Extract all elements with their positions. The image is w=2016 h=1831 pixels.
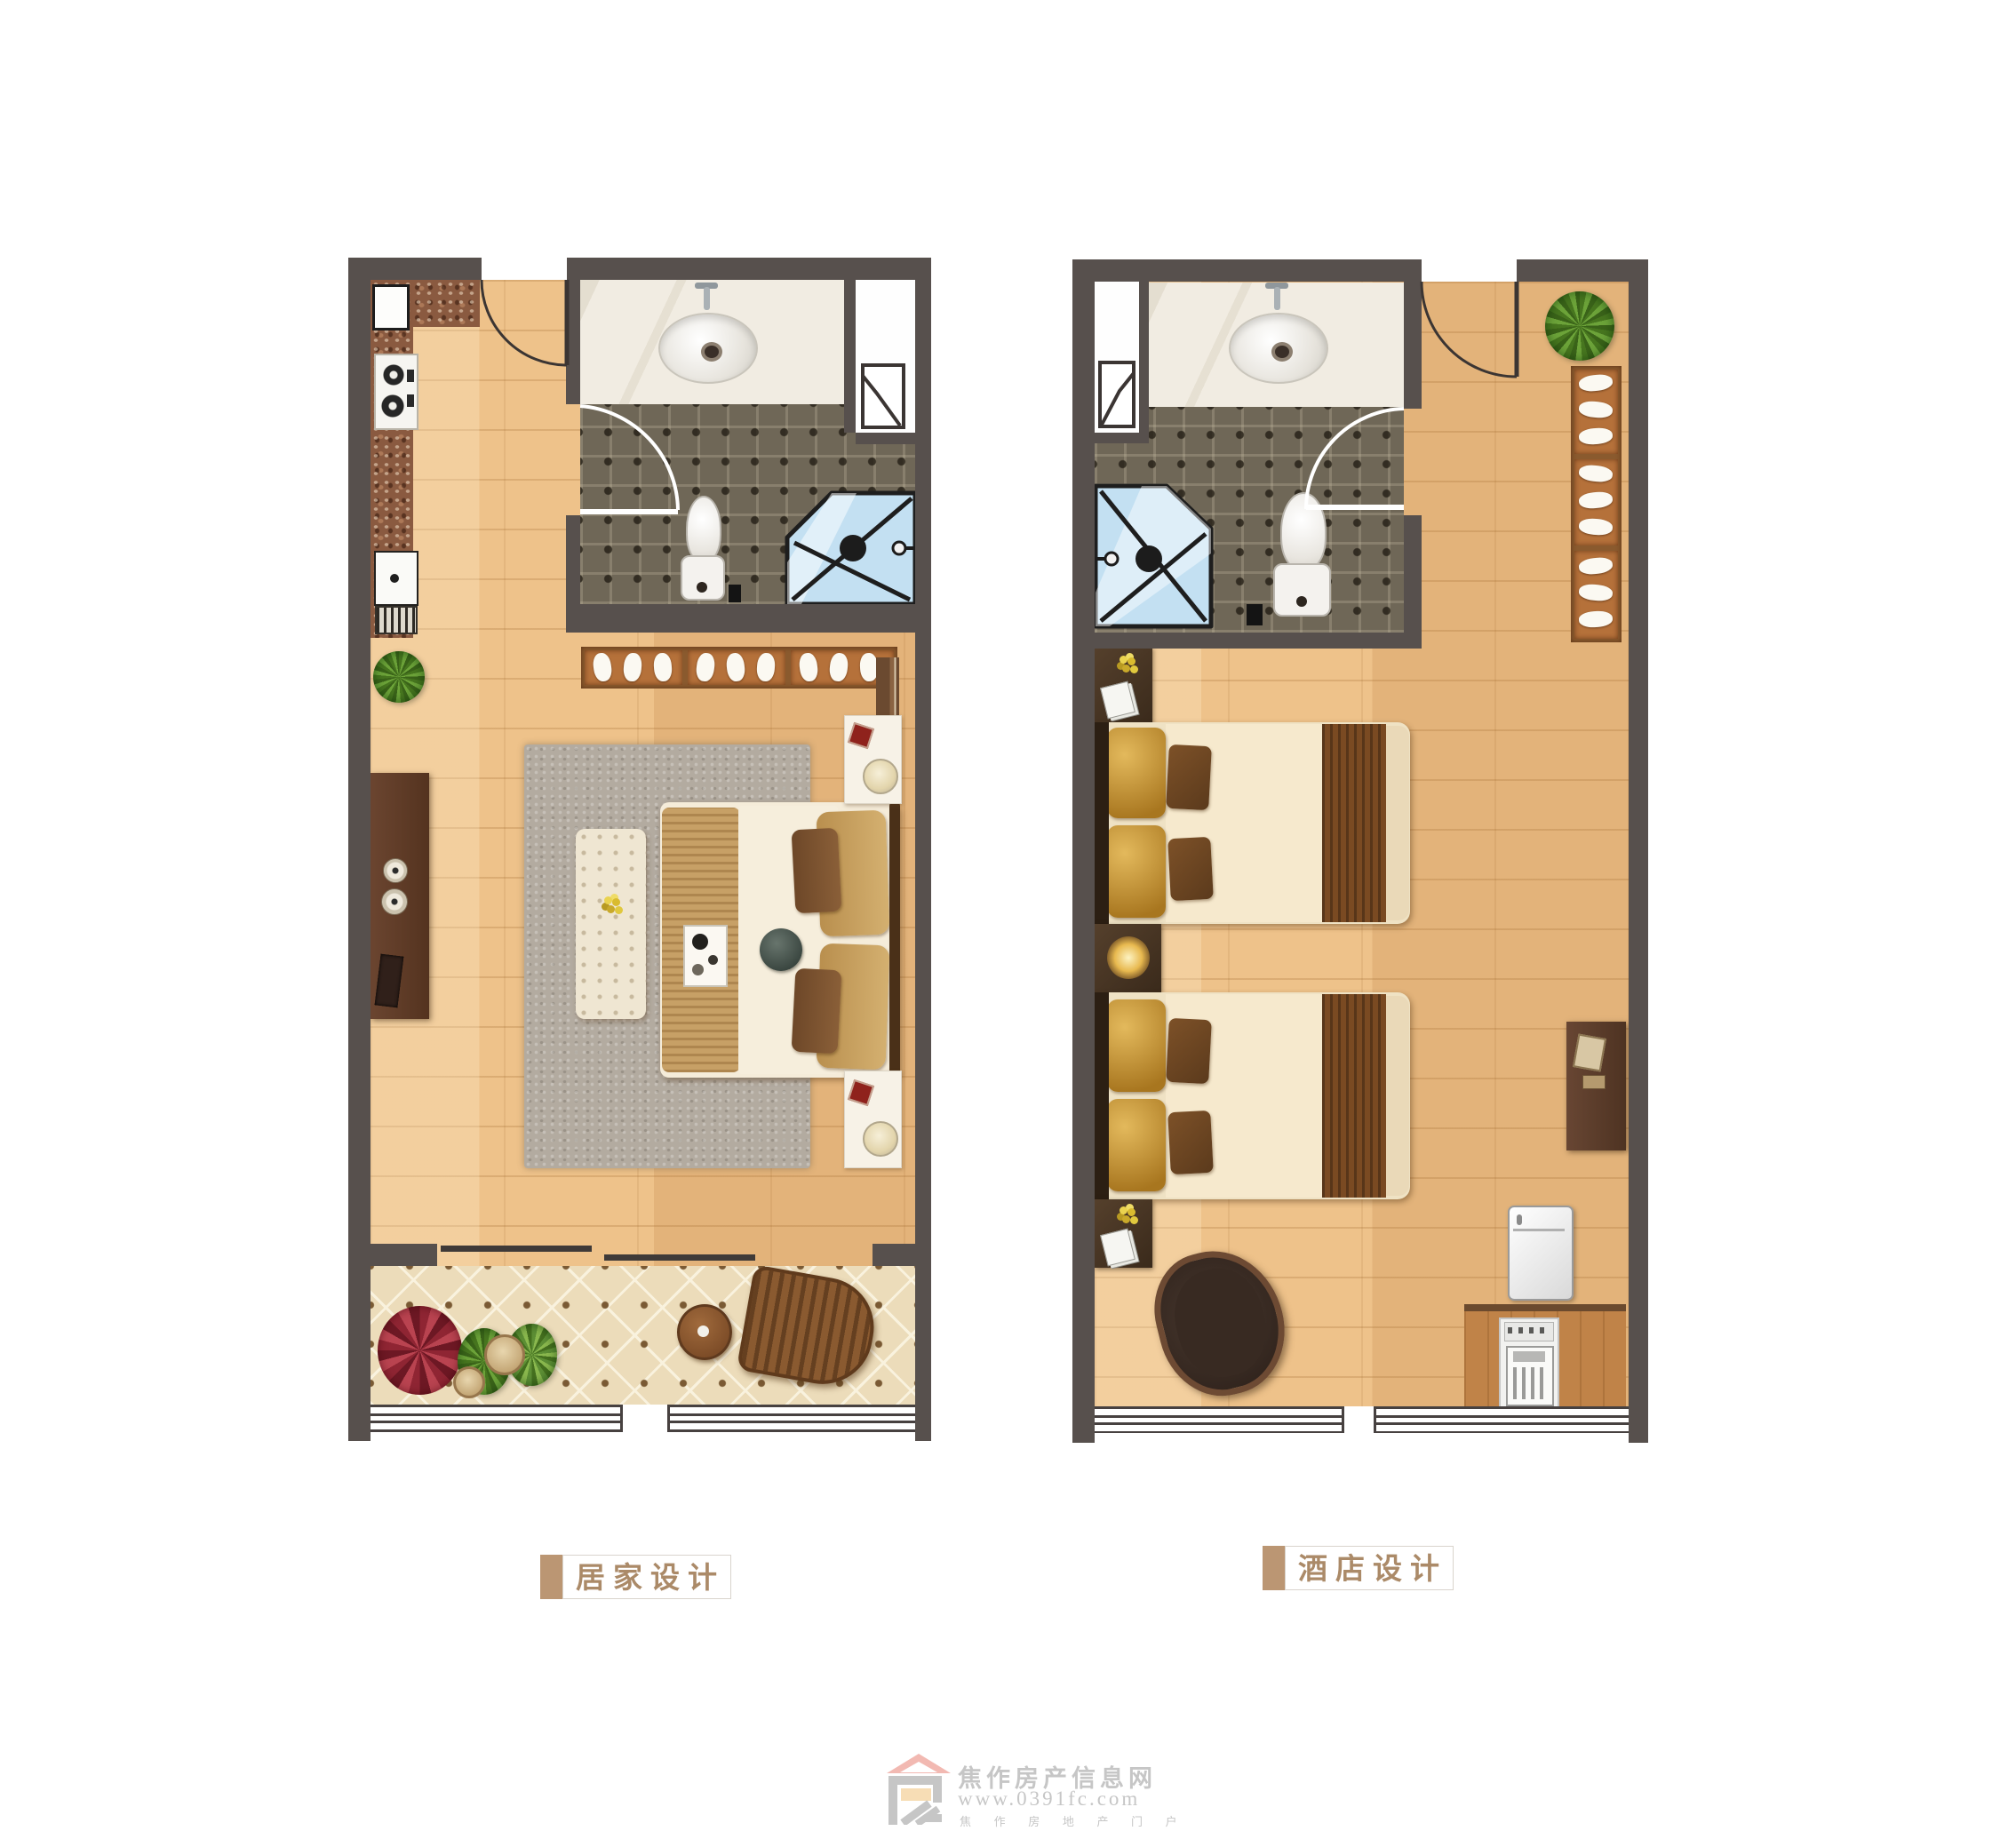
kitchenette-counter [1464, 1304, 1626, 1409]
flower-icon [1120, 1206, 1128, 1214]
pillow-icon [1166, 1018, 1212, 1084]
closet [856, 280, 915, 433]
plant-icon [1545, 291, 1614, 361]
entry-door-icon [482, 280, 567, 365]
floor-drain-icon [1247, 604, 1263, 625]
headboard [1095, 722, 1109, 924]
burner-icon [381, 394, 404, 418]
wall [1139, 277, 1149, 433]
wall [1095, 433, 1149, 443]
tv-console [371, 773, 429, 1019]
stove-panel [407, 394, 414, 407]
bed-edge [1386, 726, 1409, 920]
wall [1072, 259, 1422, 282]
label-accent-block [540, 1555, 562, 1599]
closet [1095, 277, 1139, 433]
wall [915, 258, 931, 1441]
bathroom-door-icon [580, 404, 678, 515]
floorplan-hotel [1072, 259, 1648, 1443]
vanity-sink-icon [1229, 313, 1328, 384]
bed-blanket [1322, 724, 1386, 922]
fridge-door-line [1513, 1229, 1565, 1231]
tv-remote-icon [375, 954, 404, 1008]
pillow-icon [792, 968, 842, 1055]
nightstand [1095, 1199, 1152, 1268]
desk [1566, 1022, 1626, 1150]
pillow-icon [1166, 744, 1212, 810]
red-box-icon [848, 722, 874, 749]
plan-label-hotel: 酒店设计 [1263, 1546, 1454, 1590]
nightstand [844, 715, 902, 804]
floorplan-home [348, 258, 931, 1441]
toilet-button [697, 582, 707, 593]
nightstand [1095, 647, 1152, 726]
vanity-sink-icon [658, 313, 758, 384]
window-mullion [620, 1405, 670, 1432]
stove-unit-icon [1499, 1318, 1559, 1410]
kitchen-sink-icon [372, 284, 410, 330]
stove-panel [407, 370, 414, 382]
planter-pot-icon [484, 1334, 525, 1375]
pillow-icon [1167, 1111, 1214, 1174]
toilet-tank [1273, 563, 1331, 617]
wall [1404, 282, 1422, 409]
cup-icon [708, 955, 718, 965]
closet-door-icon [1095, 277, 1139, 433]
basin-drain [390, 574, 399, 583]
wall [1072, 259, 1095, 1443]
shoe-cabinet [581, 647, 897, 689]
plan-label-home-text: 居家设计 [562, 1555, 731, 1599]
plan-label-home: 居家设计 [540, 1555, 731, 1599]
watermark-tagline: 焦 作 房 地 产 门 户 [960, 1812, 1187, 1829]
faucet-icon [1269, 283, 1285, 313]
floor-drain-icon [729, 585, 741, 602]
desk-phone-icon [1573, 1034, 1606, 1072]
magazine-icon [1100, 1229, 1135, 1267]
control-buttons [1508, 1327, 1549, 1333]
flower-icon [1120, 656, 1128, 664]
shoe-cabinet [1571, 366, 1622, 642]
side-table-icon [677, 1304, 732, 1360]
magazine-icon [1100, 681, 1135, 720]
drain-board-icon [375, 606, 418, 634]
oven-handle [1513, 1351, 1545, 1362]
wall [1629, 259, 1648, 1443]
table-lamp-icon [863, 759, 898, 794]
closet-door-icon [856, 280, 915, 433]
pillow-icon [1107, 1099, 1166, 1191]
speaker-knob-icon [381, 888, 408, 915]
headboard [889, 802, 900, 1078]
fridge-icon [1508, 1206, 1574, 1301]
toilet-icon [681, 496, 723, 601]
toilet-tank [681, 555, 725, 601]
corner-shower-icon [1096, 486, 1211, 626]
pillow-icon [1107, 728, 1166, 818]
toilet-button [1296, 596, 1307, 607]
entry-door-icon [1422, 282, 1517, 377]
wall [348, 258, 371, 1441]
plan-label-hotel-text: 酒店设计 [1285, 1546, 1454, 1590]
table-lamp-icon [863, 1121, 898, 1157]
wash-basin-icon [374, 551, 418, 606]
round-cushion-icon [760, 928, 802, 971]
red-flower-plant-icon [378, 1306, 462, 1395]
faucet-icon [698, 283, 714, 313]
pillow-icon [1107, 999, 1166, 1092]
nightstand [844, 1071, 902, 1168]
nightstand [1095, 924, 1161, 992]
planter-pot-icon [453, 1366, 485, 1398]
bed-edge [1386, 996, 1409, 1196]
desk-tray-icon [1582, 1075, 1606, 1089]
table-center [697, 1325, 709, 1337]
plant-icon [373, 651, 425, 703]
flower-icon [604, 896, 612, 904]
tea-tray-icon [683, 925, 728, 987]
oven-grill [1513, 1367, 1545, 1399]
twin-bed [1095, 992, 1410, 1199]
label-accent-block [1263, 1546, 1285, 1590]
wall [1072, 633, 1422, 649]
toilet-bowl [686, 496, 721, 562]
red-box-icon [848, 1079, 874, 1106]
sliding-door-track [441, 1246, 592, 1252]
bedside-lamp-icon [1107, 936, 1150, 979]
wall [856, 433, 915, 444]
bathroom-door-icon [1306, 409, 1404, 509]
burner-icon [383, 364, 404, 386]
wall [566, 604, 931, 633]
twin-bed [1095, 722, 1410, 924]
sliding-door-track [604, 1254, 755, 1261]
wall [566, 515, 580, 604]
wall [567, 258, 931, 280]
floorplan-sheet: 居家设计 酒店设计 焦作房产信息网 www.0391fc.com 焦 作 房 地… [0, 0, 2016, 1831]
pillow-icon [792, 828, 842, 914]
speaker-knob-icon [383, 858, 408, 883]
window-mullion [1342, 1406, 1376, 1433]
watermark-site-url: www.0391fc.com [958, 1787, 1140, 1811]
bowl-icon [692, 964, 704, 975]
kettle-icon [692, 934, 708, 950]
toilet-icon [1273, 492, 1330, 617]
pillow-icon [1167, 837, 1214, 901]
bed-blanket [1322, 994, 1386, 1198]
fridge-handle-icon [1517, 1214, 1522, 1225]
chair-seat [1165, 1260, 1277, 1386]
wall [1404, 515, 1422, 649]
corner-shower-icon [787, 493, 915, 604]
double-bed [660, 802, 900, 1078]
gas-stove-icon [374, 354, 418, 430]
pillow-icon [1107, 825, 1166, 918]
tufted-bench [576, 829, 646, 1019]
watermark-logo-icon [887, 1754, 951, 1825]
headboard [1095, 992, 1109, 1199]
wall [844, 280, 856, 433]
counter-edge [1464, 1304, 1626, 1311]
watermark: 焦作房产信息网 www.0391fc.com 焦 作 房 地 产 门 户 [887, 1752, 1189, 1831]
